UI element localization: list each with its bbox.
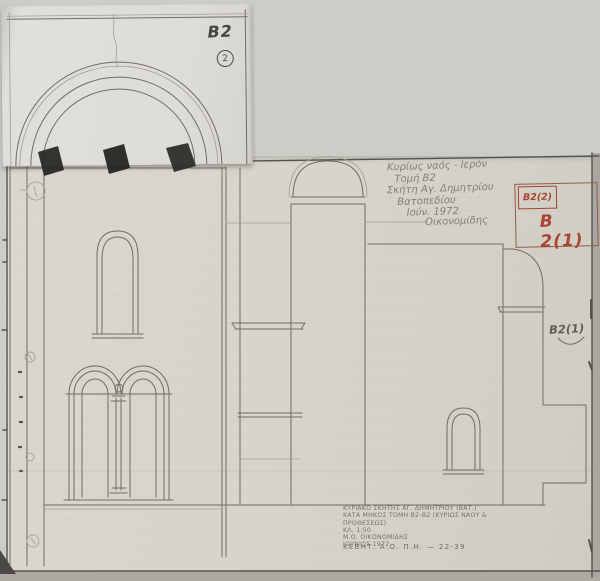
- wall-section-label: Β2(1): [549, 321, 585, 337]
- caption-line: ΚΑΤΑ ΜΗΚΟΣ ΤΟΜΗ Β2-Β2 (ΚΥΡΙΩΣ ΝΑΟΥ & ΠΡΟ…: [343, 512, 513, 527]
- tape-strip: [38, 146, 64, 176]
- red-index-label: Β 2(1): [539, 210, 600, 252]
- tape-strip: [103, 144, 130, 174]
- caption-line: ΚΛ. 1:50: [343, 527, 513, 534]
- tape-strips: [0, 0, 600, 581]
- caption-line: Μ.Ο. ΟΙΚΟΝΟΜΙΔΗΣ: [343, 534, 513, 541]
- scanned-architectural-drawing: B2 2 Β2(2) Β 2(1) Β2(1) Κυρίως ναός - Ιε…: [0, 0, 600, 581]
- caption-line: ΚΥΡΙΑΚΟ ΣΚΗΤΗΣ ΑΓ. ΔΗΜΗΤΡΙΟΥ (ΒΑΤ.): [343, 505, 513, 512]
- handwritten-note: Κυρίως ναός - Ιερόν Τομή Β2 Σκήτη Αγ. Δη…: [385, 158, 527, 230]
- tape-strip: [166, 143, 196, 172]
- archive-reference: ΚΕΒΗΤ. Α.Ο. Π.Η. — 22-39: [343, 543, 466, 551]
